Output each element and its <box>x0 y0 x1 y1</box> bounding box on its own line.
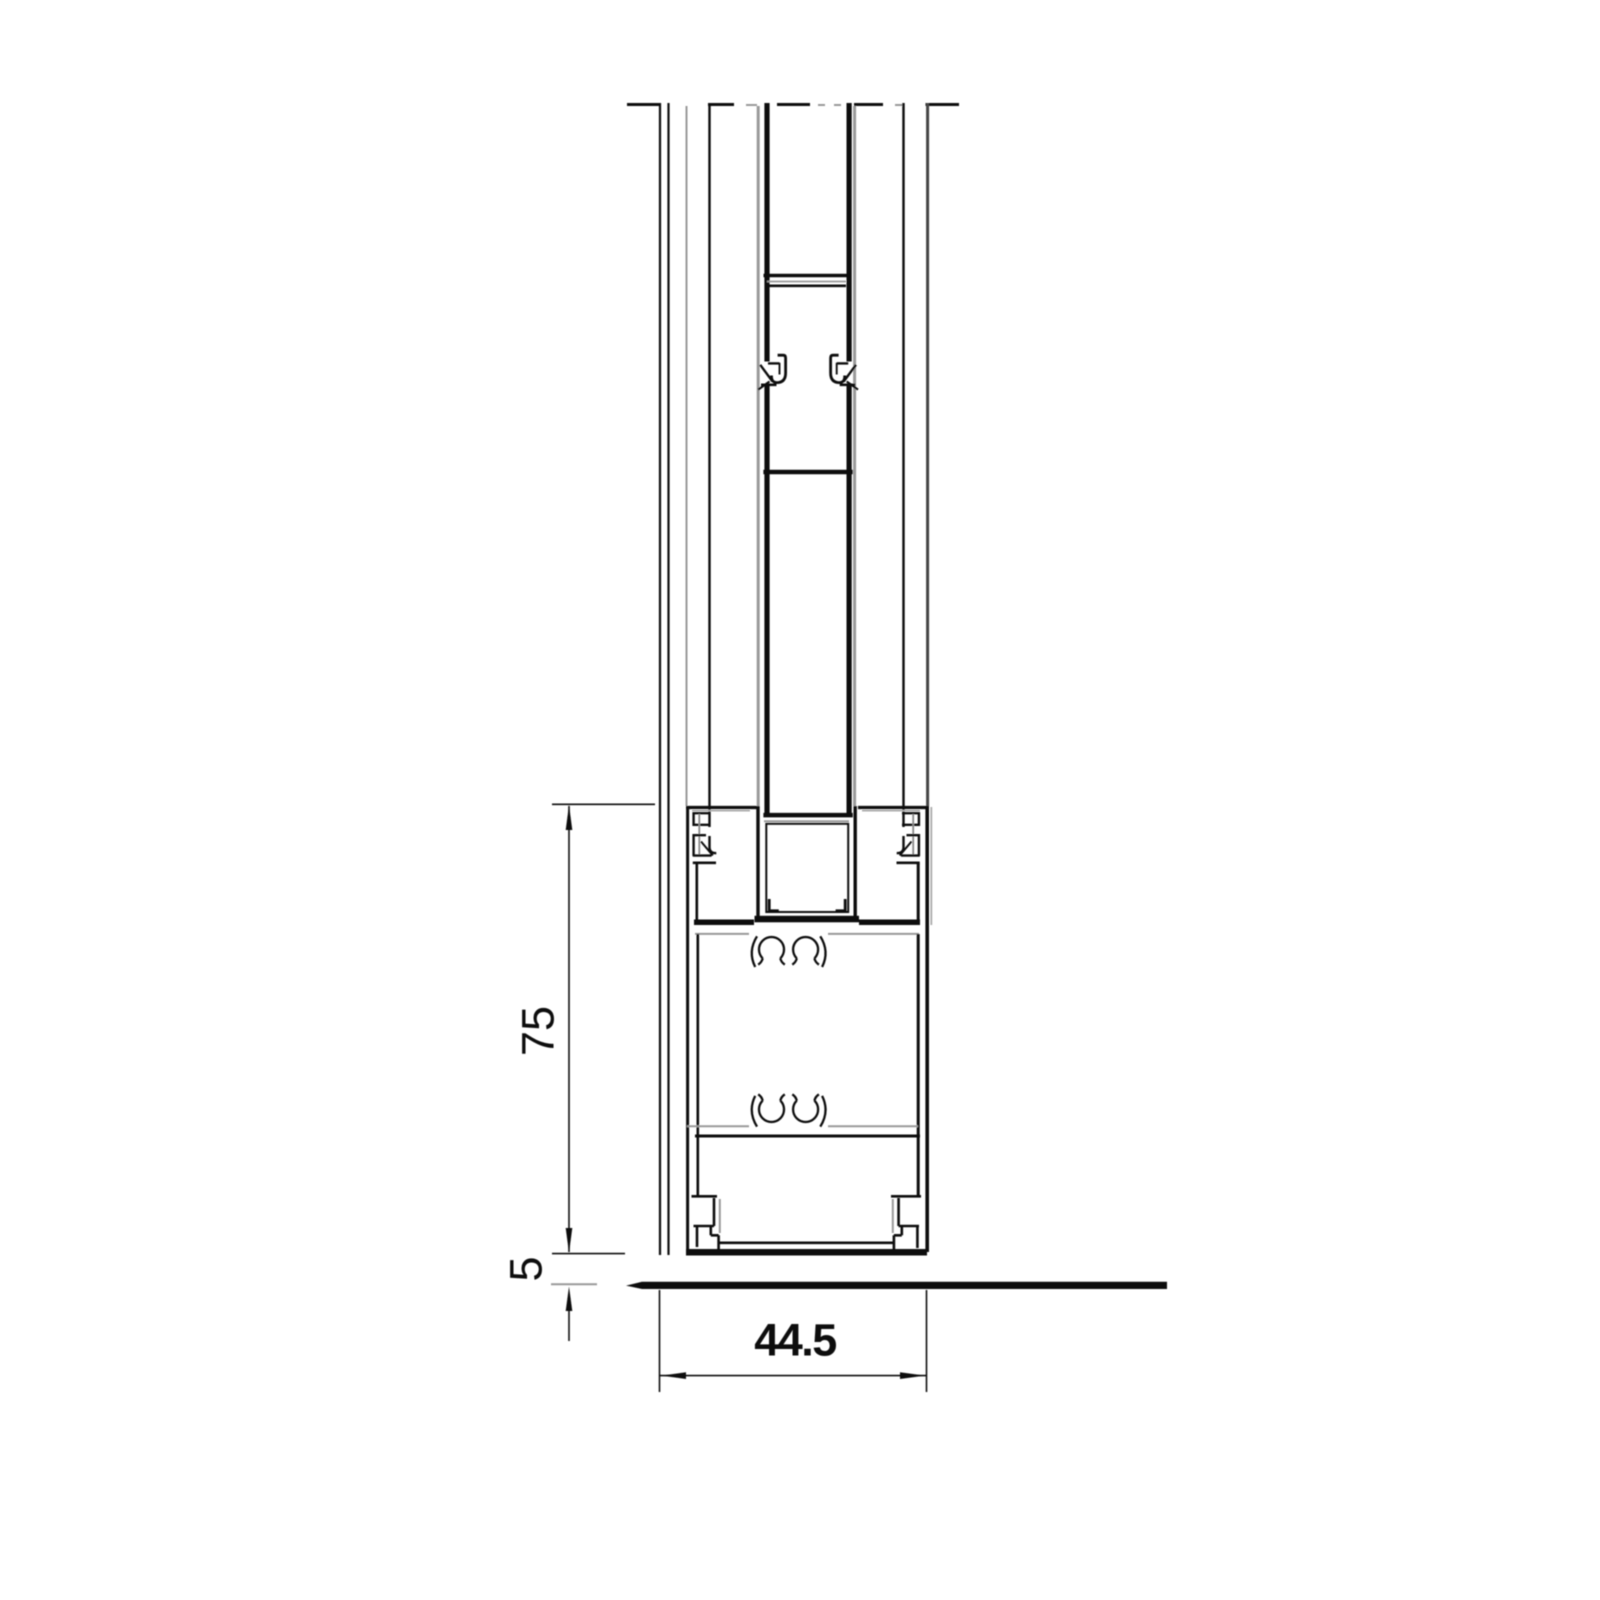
svg-text:75: 75 <box>513 1006 564 1056</box>
svg-text:44.5: 44.5 <box>754 1315 836 1366</box>
svg-text:5: 5 <box>501 1256 552 1281</box>
